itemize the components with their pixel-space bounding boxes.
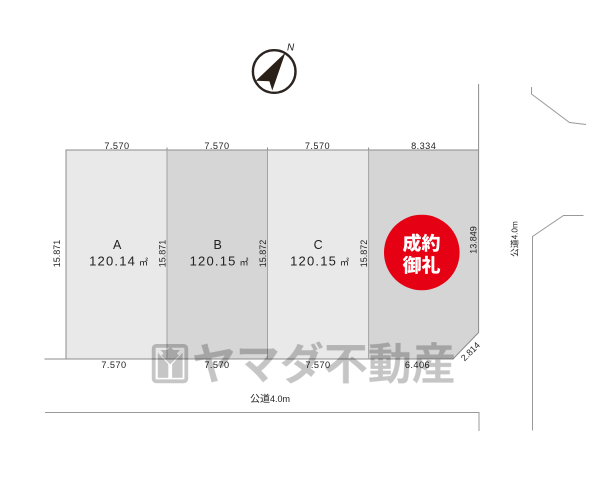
svg-text:7.570: 7.570 [204, 141, 229, 151]
svg-text:15.872: 15.872 [258, 240, 268, 268]
svg-text:4.0m: 4.0m [270, 394, 290, 404]
svg-text:15.871: 15.871 [52, 240, 62, 268]
svg-text:7.570: 7.570 [101, 360, 126, 370]
svg-text:120.15: 120.15 [190, 254, 237, 269]
svg-text:8.334: 8.334 [411, 141, 436, 151]
svg-text:N: N [287, 43, 295, 54]
svg-text:13.849: 13.849 [469, 226, 479, 254]
svg-text:7.570: 7.570 [104, 141, 129, 151]
svg-text:15.871: 15.871 [158, 240, 168, 268]
svg-text:120.15: 120.15 [290, 254, 337, 269]
svg-text:7.570: 7.570 [305, 141, 330, 151]
svg-text:A: A [113, 238, 122, 252]
svg-text:C: C [314, 238, 323, 252]
svg-text:4.0m: 4.0m [511, 221, 520, 239]
svg-text:15.872: 15.872 [359, 240, 369, 268]
svg-text:B: B [214, 238, 222, 252]
svg-text:120.14: 120.14 [89, 254, 136, 269]
